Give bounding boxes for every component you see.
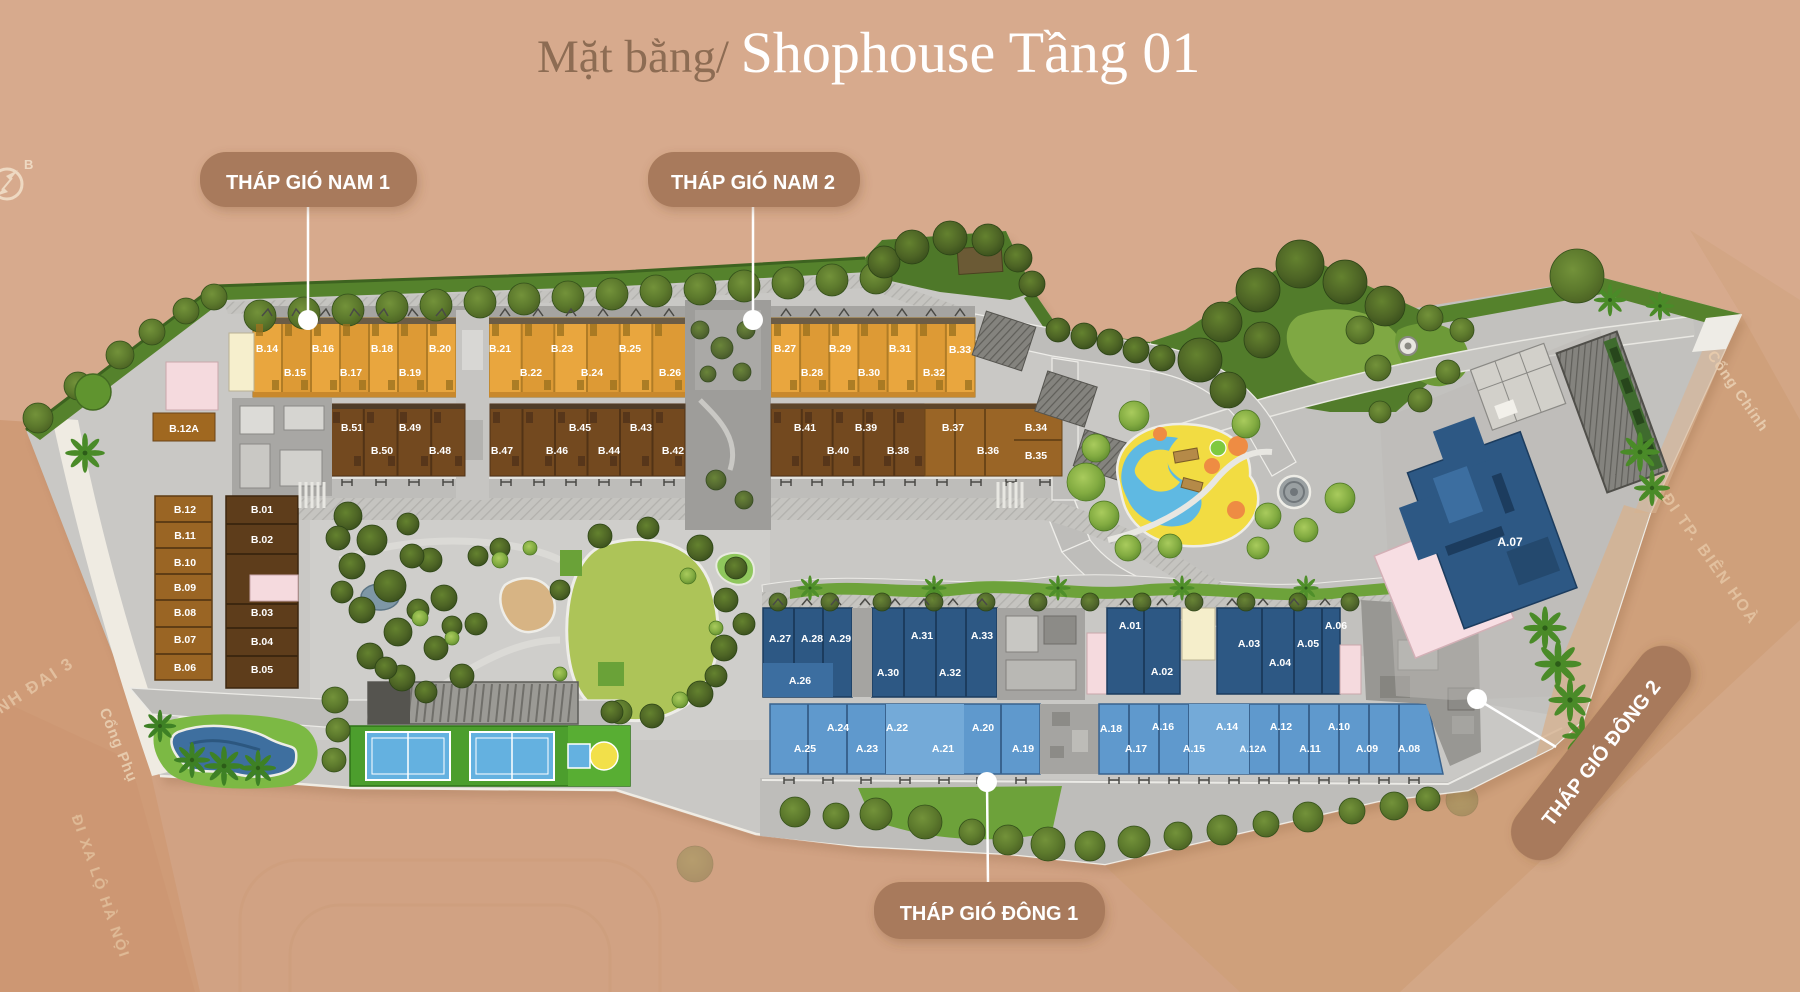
svg-text:B.10: B.10 [174, 557, 196, 569]
svg-text:B.42: B.42 [662, 445, 684, 457]
svg-text:A.15: A.15 [1183, 743, 1205, 755]
svg-text:B.43: B.43 [630, 422, 652, 434]
svg-text:THÁP GIÓ NAM 1: THÁP GIÓ NAM 1 [226, 170, 390, 194]
svg-text:B.29: B.29 [829, 343, 851, 355]
svg-text:A.14: A.14 [1216, 721, 1238, 733]
svg-text:A.33: A.33 [971, 630, 993, 642]
svg-text:B.02: B.02 [251, 534, 273, 546]
svg-text:B.25: B.25 [619, 343, 641, 355]
svg-text:A.16: A.16 [1152, 721, 1174, 733]
svg-text:B.20: B.20 [429, 343, 451, 355]
svg-text:B.26: B.26 [659, 367, 681, 379]
svg-text:A.26: A.26 [789, 675, 811, 687]
svg-text:A.28: A.28 [801, 633, 823, 645]
svg-text:B.37: B.37 [942, 422, 964, 434]
svg-text:THÁP GIÓ NAM 2: THÁP GIÓ NAM 2 [671, 170, 835, 194]
svg-text:B.51: B.51 [341, 422, 363, 434]
svg-text:A.30: A.30 [877, 667, 899, 679]
svg-text:B.33: B.33 [949, 344, 971, 356]
svg-text:B.30: B.30 [858, 367, 880, 379]
svg-text:B.05: B.05 [251, 664, 273, 676]
svg-text:A.25: A.25 [794, 743, 816, 755]
svg-text:A.09: A.09 [1356, 743, 1378, 755]
svg-text:B.41: B.41 [794, 422, 816, 434]
svg-text:A.29: A.29 [829, 633, 851, 645]
svg-text:A.21: A.21 [932, 743, 954, 755]
svg-text:A.01: A.01 [1119, 620, 1141, 632]
svg-text:A.05: A.05 [1297, 638, 1319, 650]
svg-text:B.24: B.24 [581, 367, 603, 379]
svg-text:B.18: B.18 [371, 343, 393, 355]
svg-text:A.03: A.03 [1238, 638, 1260, 650]
svg-text:B.04: B.04 [251, 636, 273, 648]
svg-text:B.35: B.35 [1025, 450, 1047, 462]
svg-text:B.31: B.31 [889, 343, 911, 355]
svg-text:A.18: A.18 [1100, 723, 1122, 735]
svg-text:B.15: B.15 [284, 367, 306, 379]
svg-text:B.28: B.28 [801, 367, 823, 379]
svg-text:B.22: B.22 [520, 367, 542, 379]
svg-text:B.21: B.21 [489, 343, 511, 355]
svg-text:A.12: A.12 [1270, 721, 1292, 733]
svg-text:A.23: A.23 [856, 743, 878, 755]
svg-text:A.19: A.19 [1012, 743, 1034, 755]
svg-text:B.14: B.14 [256, 343, 278, 355]
svg-text:A.08: A.08 [1398, 743, 1420, 755]
svg-text:A.17: A.17 [1125, 743, 1147, 755]
svg-text:B.11: B.11 [174, 530, 196, 542]
svg-text:B.06: B.06 [174, 662, 196, 674]
svg-text:A.12A: A.12A [1240, 744, 1267, 755]
svg-text:B.12: B.12 [174, 504, 196, 516]
svg-text:B.03: B.03 [251, 607, 273, 619]
svg-text:A.07: A.07 [1497, 535, 1523, 549]
svg-text:A.06: A.06 [1325, 620, 1347, 632]
svg-text:B.12A: B.12A [169, 423, 199, 435]
svg-text:A.31: A.31 [911, 630, 933, 642]
svg-text:B.40: B.40 [827, 445, 849, 457]
svg-text:B.32: B.32 [923, 367, 945, 379]
svg-text:B.38: B.38 [887, 445, 909, 457]
svg-text:A.02: A.02 [1151, 666, 1173, 678]
svg-text:B.46: B.46 [546, 445, 568, 457]
svg-text:B.49: B.49 [399, 422, 421, 434]
svg-text:B.27: B.27 [774, 343, 796, 355]
svg-text:B.45: B.45 [569, 422, 591, 434]
svg-text:A.32: A.32 [939, 667, 961, 679]
svg-text:B.17: B.17 [340, 367, 362, 379]
svg-text:THÁP GIÓ ĐÔNG 1: THÁP GIÓ ĐÔNG 1 [900, 901, 1079, 925]
svg-text:B.47: B.47 [491, 445, 513, 457]
svg-text:A.11: A.11 [1299, 743, 1321, 755]
svg-text:A.10: A.10 [1328, 721, 1350, 733]
svg-text:B: B [24, 157, 33, 172]
svg-text:B.48: B.48 [429, 445, 451, 457]
svg-text:B.08: B.08 [174, 607, 196, 619]
svg-text:A.04: A.04 [1269, 657, 1291, 669]
svg-text:B.09: B.09 [174, 582, 196, 594]
svg-text:B.50: B.50 [371, 445, 393, 457]
svg-text:B.23: B.23 [551, 343, 573, 355]
svg-text:B.07: B.07 [174, 634, 196, 646]
svg-text:B.36: B.36 [977, 445, 999, 457]
svg-text:A.24: A.24 [827, 722, 849, 734]
svg-text:A.22: A.22 [886, 722, 908, 734]
svg-text:B.34: B.34 [1025, 422, 1047, 434]
svg-text:B.39: B.39 [855, 422, 877, 434]
svg-text:B.44: B.44 [598, 445, 620, 457]
svg-text:B.19: B.19 [399, 367, 421, 379]
svg-text:A.20: A.20 [972, 722, 994, 734]
svg-text:B.01: B.01 [251, 504, 273, 516]
svg-text:B.16: B.16 [312, 343, 334, 355]
svg-text:A.27: A.27 [769, 633, 791, 645]
